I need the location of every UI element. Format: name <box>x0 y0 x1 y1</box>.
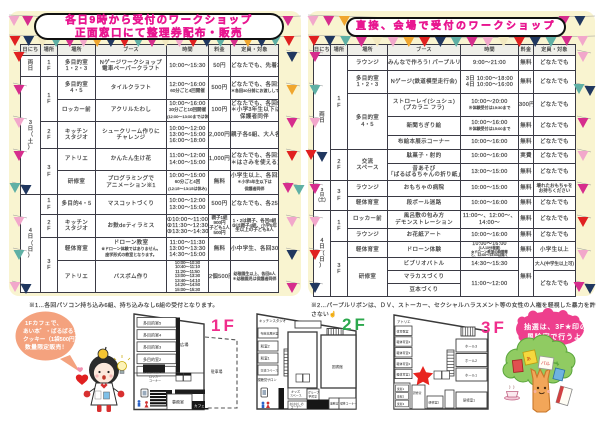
svg-text:楽屋1: 楽屋1 <box>397 387 405 391</box>
svg-text:多目的室5: 多目的室5 <box>143 319 162 325</box>
svg-text:軽体育室2: 軽体育室2 <box>397 361 411 366</box>
svg-text:学習室: 学習室 <box>309 394 318 398</box>
svg-text:広場: 広場 <box>180 341 189 348</box>
svg-text:研修室: 研修室 <box>413 391 422 395</box>
svg-text:事務室: 事務室 <box>330 402 339 406</box>
svg-text:研修室2: 研修室2 <box>429 400 440 405</box>
svg-text:和室2: 和室2 <box>261 344 270 349</box>
svg-text:あい本゛・ばるばるちゃん: あい本゛・ばるばるちゃん <box>23 327 91 335</box>
svg-text:研修室1: 研修室1 <box>463 398 475 403</box>
svg-text:駐車場: 駐車場 <box>211 369 223 374</box>
svg-text:喫茶コーナー: 喫茶コーナー <box>340 402 357 406</box>
svg-text:多目的室4: 多目的室4 <box>143 332 162 338</box>
svg-text:数量限定販売！: 数量限定販売！ <box>25 343 68 351</box>
svg-text:軽体育室1: 軽体育室1 <box>397 372 411 377</box>
svg-text:ホール3: ホール3 <box>465 344 477 349</box>
svg-text:アトリエ: アトリエ <box>397 319 411 324</box>
svg-text:楽屋3: 楽屋3 <box>397 402 405 406</box>
svg-text:クッキー（1袋500円）: クッキー（1袋500円） <box>23 335 80 343</box>
svg-text:ホール1: ホール1 <box>465 373 477 378</box>
svg-text:多目的室2: 多目的室2 <box>143 356 162 362</box>
svg-text:抽選は、3F★印の: 抽選は、3F★印の <box>524 322 588 331</box>
svg-text:スペース: スペース <box>290 393 302 398</box>
svg-text:1F: 1F <box>211 316 237 335</box>
svg-text:体育教室: 体育教室 <box>397 328 409 333</box>
svg-text:視聴覚サロン: 視聴覚サロン <box>258 377 277 382</box>
svg-text:2F: 2F <box>342 315 368 334</box>
svg-text:1Fカフェで、: 1Fカフェで、 <box>25 320 63 327</box>
svg-text:軽体育室3: 軽体育室3 <box>397 350 411 355</box>
svg-text:ホール2: ホール2 <box>465 358 477 363</box>
svg-text:軽体育室4: 軽体育室4 <box>397 339 411 344</box>
svg-text:コーナー: コーナー <box>149 378 161 383</box>
svg-text:多目的室3: 多目的室3 <box>143 344 162 350</box>
svg-text:事務室: 事務室 <box>172 399 184 405</box>
svg-text:カフェ: カフェ <box>194 403 205 408</box>
svg-text:楽屋2: 楽屋2 <box>397 394 405 398</box>
svg-text:交流スペース: 交流スペース <box>261 368 279 373</box>
svg-text:3F: 3F <box>481 318 507 337</box>
svg-text:キッチンスタジオ: キッチンスタジオ <box>259 318 287 323</box>
svg-text:布絵本展示室: 布絵本展示室 <box>261 331 279 336</box>
svg-text:コーナー: コーナー <box>291 405 302 409</box>
svg-text:図書館: 図書館 <box>332 364 343 369</box>
svg-text:和室1: 和室1 <box>261 356 270 361</box>
